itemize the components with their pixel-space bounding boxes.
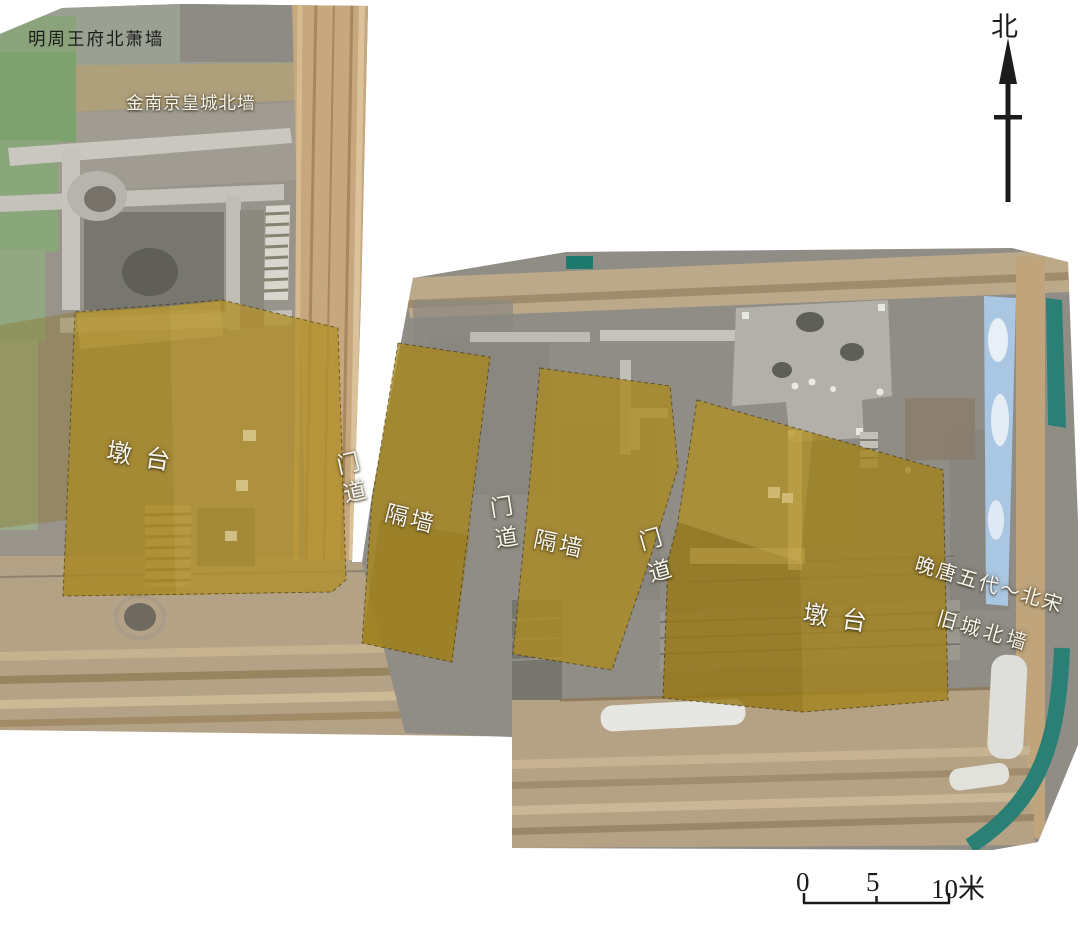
label-jin-wall: 金南京皇城北墙	[126, 90, 256, 115]
scale-label-10m: 10米	[931, 867, 985, 906]
label-ming-wall: 明周王府北萧墙	[28, 26, 165, 51]
north-arrow	[994, 38, 1022, 202]
figure-canvas: 明周王府北萧墙 金南京皇城北墙 墩台 门道 隔墙 门道 隔墙 门道 墩台 晚唐五…	[0, 0, 1080, 947]
scale-label-0: 0	[796, 867, 810, 898]
scale-label-5: 5	[866, 867, 880, 898]
north-label: 北	[991, 5, 1018, 44]
